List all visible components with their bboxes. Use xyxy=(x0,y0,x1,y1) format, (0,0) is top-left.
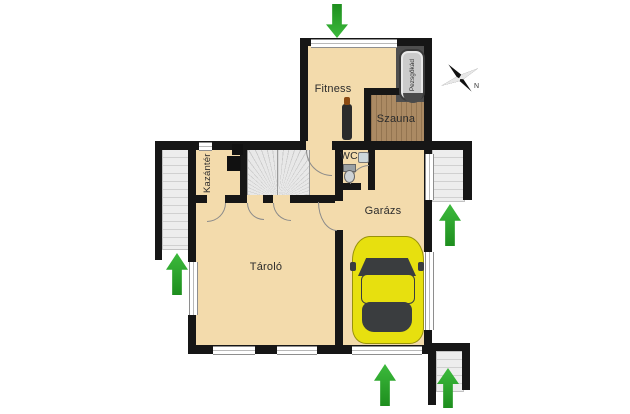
window-tarolo-bottom-1 xyxy=(213,346,255,355)
compass-icon: N xyxy=(438,56,484,102)
staircase-divider xyxy=(277,149,278,196)
window-tarolo-bottom-2 xyxy=(277,346,317,355)
door-gap-stairs-1 xyxy=(247,195,263,203)
car-roof xyxy=(361,274,415,304)
garage-door-opening xyxy=(352,346,422,355)
garage-entrance-arrow-icon xyxy=(374,364,396,406)
car-mirror-right xyxy=(418,262,424,271)
punching-bag xyxy=(342,104,352,140)
wall-stair-left-side xyxy=(155,141,162,260)
fitness-floor-lower xyxy=(307,45,364,145)
door-gap-stairs-2 xyxy=(273,195,290,203)
wall-stair-br-left xyxy=(428,348,436,405)
entrance-arrow-left-icon xyxy=(166,253,188,295)
wall-tarolo-bottom xyxy=(188,345,345,354)
toilet-bowl-icon xyxy=(344,170,355,183)
wall-stair-right-side xyxy=(463,141,472,200)
door-garage-right xyxy=(425,154,434,200)
car-mirror-left xyxy=(350,262,356,271)
boiler-flue xyxy=(232,144,243,155)
exterior-staircase-right xyxy=(432,149,465,202)
hot-tub-label: Pezsgőkád xyxy=(409,59,416,91)
window-garage-right xyxy=(425,252,434,330)
door-gap-fitness xyxy=(306,141,332,150)
car-rear-window xyxy=(362,302,412,332)
wall-stair-br-right xyxy=(462,343,470,390)
window-tarolo-left xyxy=(189,262,198,315)
wall-szauna-north xyxy=(364,88,400,95)
car xyxy=(350,236,424,342)
floor-plan: Pezsgőkád N Fitness Szauna Garázs Tároló… xyxy=(0,0,630,414)
compass-north-label: N xyxy=(474,83,479,90)
wall-tarolo-garage xyxy=(335,141,343,354)
wall-wc-south xyxy=(335,183,361,190)
punching-bag-knob xyxy=(344,97,350,105)
wall-upper-right xyxy=(424,38,432,150)
room-label-tarolo: Tároló xyxy=(230,261,302,273)
interior-staircase xyxy=(247,149,310,198)
room-label-kazanter: Kazántér xyxy=(202,147,213,199)
boiler xyxy=(227,156,241,171)
window-fitness-top xyxy=(311,39,397,48)
room-label-fitness: Fitness xyxy=(303,83,363,95)
entrance-arrow-top-icon xyxy=(326,4,348,38)
room-label-wc: WC xyxy=(340,150,368,162)
entrance-arrow-right-icon xyxy=(439,204,461,246)
room-label-garazs: Garázs xyxy=(348,205,418,217)
room-label-szauna: Szauna xyxy=(369,113,423,125)
